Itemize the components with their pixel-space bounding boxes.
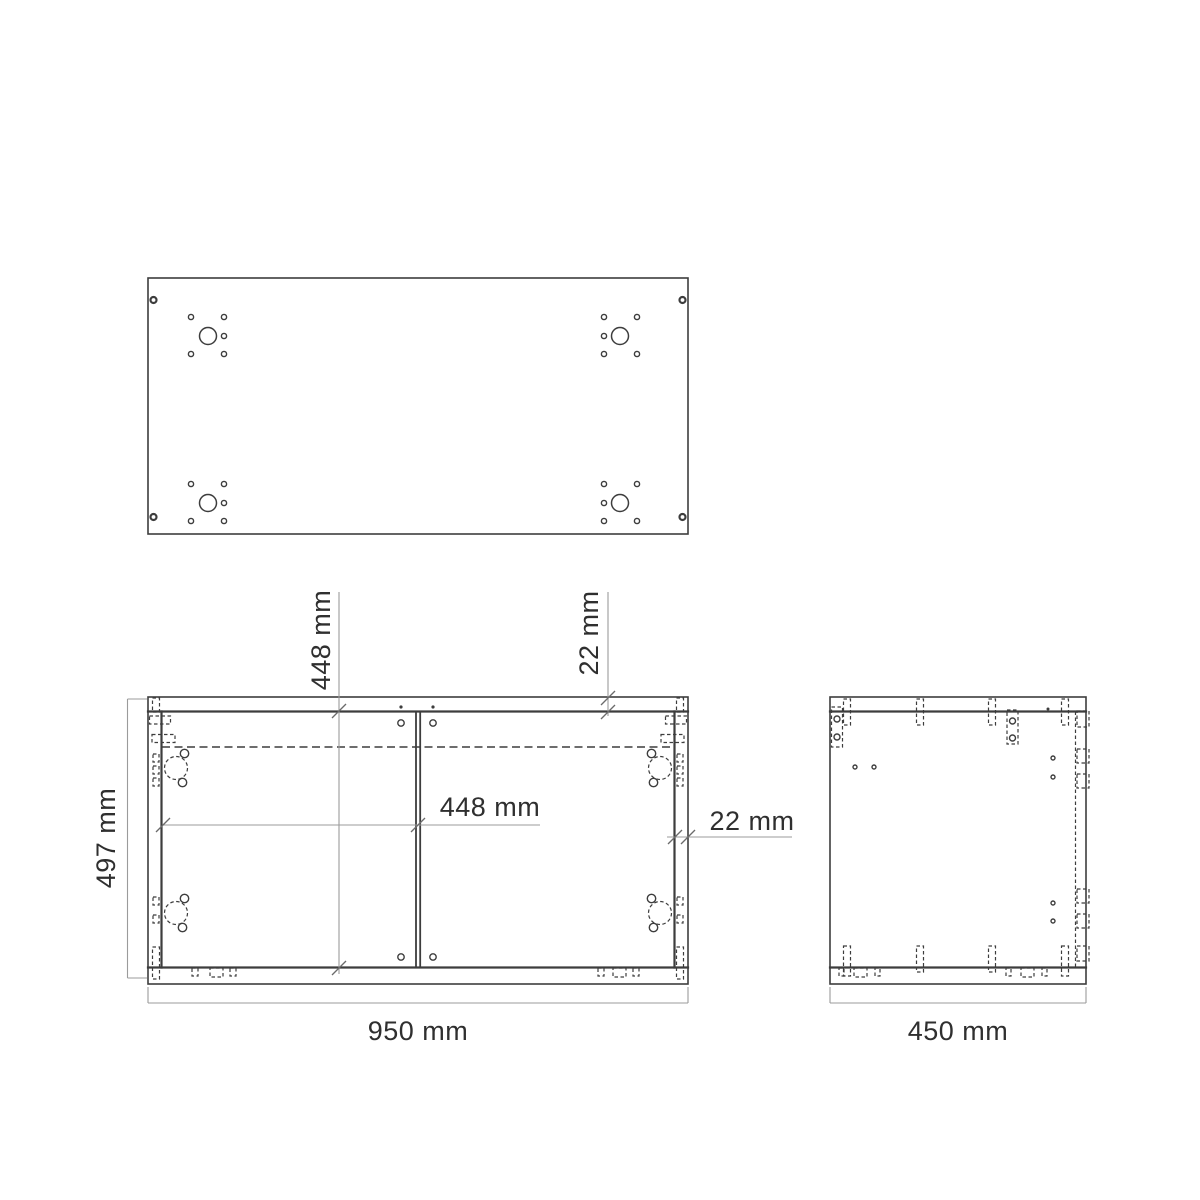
top-view <box>148 278 688 534</box>
corner-hole <box>151 297 157 303</box>
dim-label-cabinet-width: 950 mm <box>368 1016 469 1046</box>
dim-label-section-width: 448 mm <box>440 792 541 822</box>
drill-pattern-top-left <box>188 314 226 356</box>
drill-pattern-top-right <box>601 314 639 356</box>
dim-label-cabinet-height: 497 mm <box>91 788 121 889</box>
drawing-svg: 448 mm 22 mm 497 mm 448 mm 22 mm 950 mm … <box>0 0 1200 1200</box>
hinge-top-left <box>165 749 189 786</box>
hinge-bottom-left <box>165 894 189 931</box>
hinge-top-right <box>647 749 671 786</box>
front-view <box>148 697 688 984</box>
technical-drawing-canvas: 448 mm 22 mm 497 mm 448 mm 22 mm 950 mm … <box>0 0 1200 1200</box>
corner-hole <box>680 297 686 303</box>
corner-hole <box>680 514 686 520</box>
dim-label-section-width-top: 448 mm <box>306 590 336 691</box>
side-view <box>830 697 1089 984</box>
dim-label-side-panel-thickness: 22 mm <box>709 806 794 836</box>
hinge-bottom-right <box>647 894 671 931</box>
drill-pattern-bottom-right <box>601 481 639 523</box>
dimensions: 448 mm 22 mm 497 mm 448 mm 22 mm 950 mm … <box>91 590 1086 1046</box>
dim-label-top-panel-thickness: 22 mm <box>574 590 604 675</box>
corner-hole <box>151 514 157 520</box>
dim-label-cabinet-depth: 450 mm <box>908 1016 1009 1046</box>
drill-pattern-bottom-left <box>188 481 226 523</box>
